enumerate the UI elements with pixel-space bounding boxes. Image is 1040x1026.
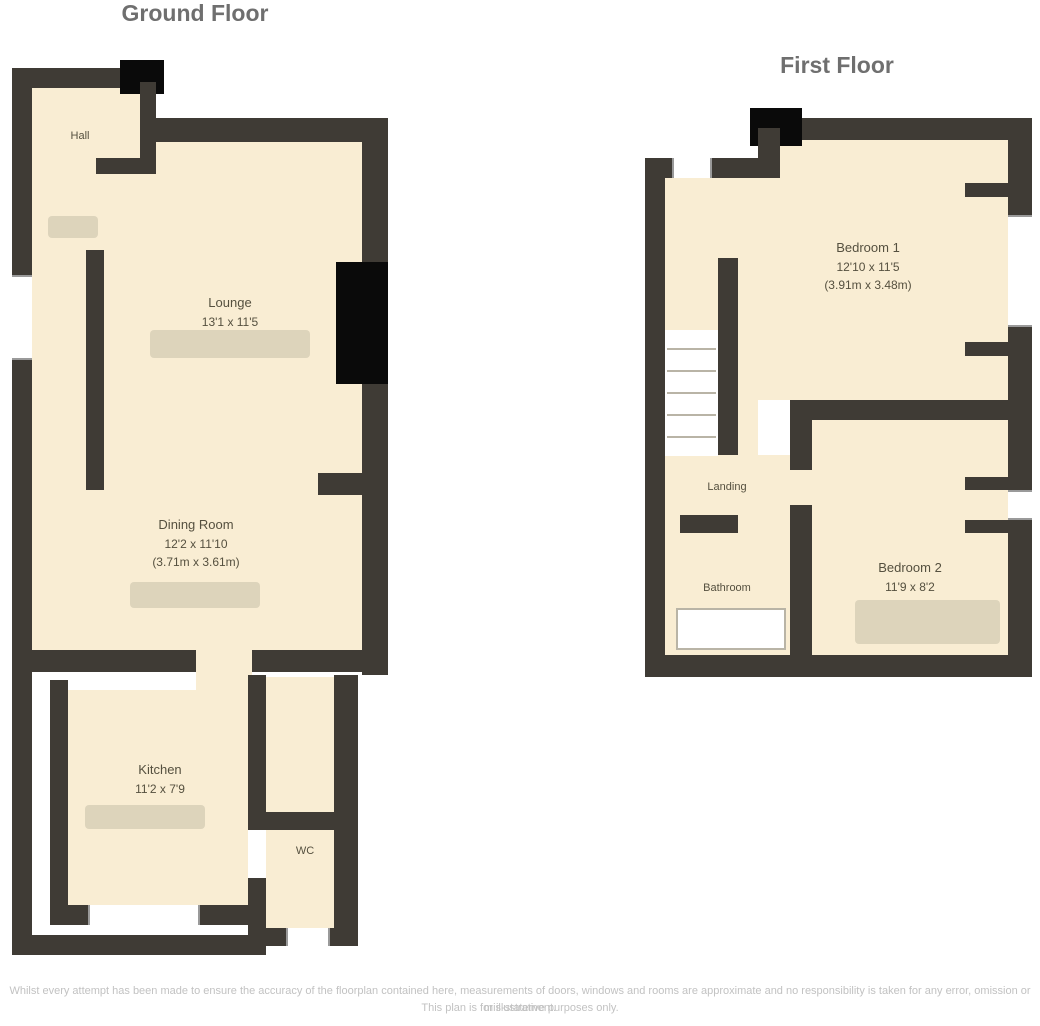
landing-label: Landing bbox=[707, 481, 746, 493]
ff-bathroom-divider-wall bbox=[680, 515, 738, 533]
disclaimer-line2: This plan is for illustrative purposes o… bbox=[0, 1000, 1040, 1017]
ff-bedroom1-window bbox=[1008, 215, 1032, 327]
bathroom-label: Bathroom bbox=[703, 582, 751, 594]
ff-reveal-stub-1 bbox=[965, 183, 1008, 197]
ff-reveal-stub-4 bbox=[965, 520, 1008, 533]
dining-room-dims-metric: (3.71m x 3.61m) bbox=[152, 553, 239, 571]
kitchen-label: Kitchen 11'2 x 7'9 bbox=[135, 760, 185, 798]
gf-rear-wall-right bbox=[252, 650, 388, 672]
kitchen-dims-imperial: 11'2 x 7'9 bbox=[135, 780, 185, 798]
lounge-dims-imperial: 13'1 x 11'5 bbox=[202, 313, 258, 331]
gf-left-outer-wall bbox=[12, 68, 32, 955]
bedroom1-dims-imperial: 12'10 x 11'5 bbox=[824, 258, 911, 276]
ground-floor-kitchen-area bbox=[68, 690, 248, 905]
ff-right-wall bbox=[1008, 118, 1032, 677]
ff-bottom-wall bbox=[645, 655, 1032, 677]
ff-left-wall bbox=[645, 158, 665, 677]
first-floor-title: First Floor bbox=[780, 52, 894, 79]
gf-rear-wall-left bbox=[12, 650, 196, 672]
stair-tread bbox=[667, 436, 716, 438]
gf-lounge-dining-divider bbox=[318, 473, 388, 495]
sofa-sketch bbox=[150, 330, 310, 358]
bed-sketch bbox=[855, 600, 1000, 644]
ground-floor-rear-doorway bbox=[196, 650, 252, 695]
ff-reveal-stub-3 bbox=[965, 477, 1008, 490]
bath-fixture bbox=[676, 608, 786, 650]
kitchen-name: Kitchen bbox=[135, 760, 185, 780]
dining-room-label: Dining Room 12'2 x 11'10 (3.71m x 3.61m) bbox=[152, 515, 239, 571]
bedroom1-label: Bedroom 1 12'10 x 11'5 (3.91m x 3.48m) bbox=[824, 238, 911, 294]
ff-top-inner-wall bbox=[718, 158, 780, 178]
floorplan-image: Ground Floor Hall Lounge 13'1 x 11'5 Din… bbox=[0, 0, 1040, 1026]
lounge-name: Lounge bbox=[202, 293, 258, 313]
gf-chimney-breast bbox=[336, 262, 388, 384]
hall-label: Hall bbox=[71, 130, 90, 142]
bedroom2-label: Bedroom 2 11'9 x 8'2 bbox=[878, 558, 942, 596]
gf-extension-left-wall bbox=[50, 680, 68, 925]
gf-kitchen-window bbox=[88, 905, 200, 925]
dining-room-name: Dining Room bbox=[152, 515, 239, 535]
bedroom1-dims-metric: (3.91m x 3.48m) bbox=[824, 276, 911, 294]
gf-hall-bottom-wall bbox=[96, 158, 156, 174]
dining-room-dims-imperial: 12'2 x 11'10 bbox=[152, 535, 239, 553]
gf-lobby-left-wall-upper bbox=[248, 675, 266, 825]
gf-outer-bottom-wall bbox=[16, 935, 262, 955]
gf-back-door-gap bbox=[286, 928, 330, 946]
wc-label: WC bbox=[296, 845, 314, 857]
ff-top-left-window bbox=[672, 158, 712, 178]
gf-right-wall bbox=[362, 118, 388, 675]
bedroom1-name: Bedroom 1 bbox=[824, 238, 911, 258]
ff-reveal-stub-2 bbox=[965, 342, 1008, 356]
dining-table-sketch bbox=[130, 582, 260, 608]
gf-extension-right-wall bbox=[334, 675, 358, 945]
stair-tread bbox=[667, 348, 716, 350]
bedroom2-dims-imperial: 11'9 x 8'2 bbox=[878, 578, 942, 596]
ff-bedroom2-window bbox=[1008, 490, 1032, 520]
stair-tread bbox=[667, 370, 716, 372]
ff-bedroom-divider-wall bbox=[790, 400, 1008, 420]
kitchen-counter-sketch bbox=[85, 805, 205, 829]
stair-tread bbox=[667, 392, 716, 394]
ground-floor-rear-lobby-area bbox=[266, 677, 334, 928]
gf-stair-wall bbox=[86, 250, 104, 490]
ff-bedroom2-left-wall-upper bbox=[790, 400, 812, 470]
hall-furniture-sketch bbox=[48, 216, 98, 238]
gf-left-window bbox=[12, 275, 32, 360]
lounge-label: Lounge 13'1 x 11'5 bbox=[202, 293, 258, 331]
ff-stair-side-wall bbox=[718, 258, 738, 455]
bedroom2-name: Bedroom 2 bbox=[878, 558, 942, 578]
ground-floor-title: Ground Floor bbox=[122, 0, 269, 27]
gf-front-wall-main bbox=[156, 118, 388, 142]
ff-bedroom2-left-wall-lower bbox=[790, 505, 812, 657]
stair-tread bbox=[667, 414, 716, 416]
